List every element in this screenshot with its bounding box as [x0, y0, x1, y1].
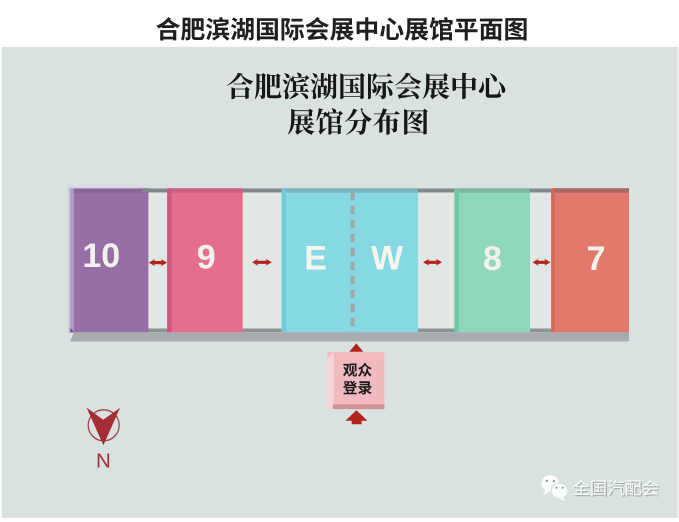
- svg-text:E: E: [304, 240, 327, 278]
- svg-text:10: 10: [82, 237, 120, 275]
- svg-text:8: 8: [483, 240, 502, 278]
- svg-text:9: 9: [197, 239, 216, 277]
- svg-text:7: 7: [586, 240, 605, 278]
- svg-text:W: W: [371, 240, 404, 278]
- svg-text:N: N: [96, 449, 111, 472]
